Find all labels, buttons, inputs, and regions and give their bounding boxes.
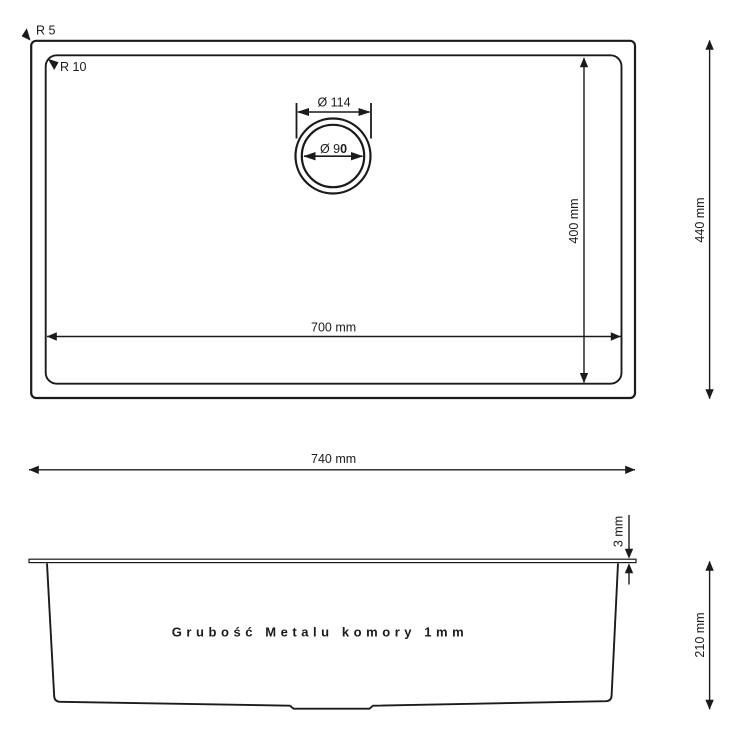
svg-text:R 5: R 5 [36, 24, 56, 38]
svg-text:Ø 114: Ø 114 [317, 96, 350, 110]
svg-text:Grubość Metalu komory 1mm: Grubość Metalu komory 1mm [172, 625, 469, 640]
svg-text:210 mm: 210 mm [693, 612, 707, 657]
svg-text:700 mm: 700 mm [311, 320, 356, 334]
svg-text:3 mm: 3 mm [612, 516, 626, 547]
svg-text:440 mm: 440 mm [693, 197, 707, 242]
svg-text:740 mm: 740 mm [311, 452, 356, 466]
svg-text:400 mm: 400 mm [567, 198, 581, 243]
svg-text:Ø 90: Ø 90 [320, 142, 347, 156]
svg-text:R 10: R 10 [60, 60, 86, 74]
